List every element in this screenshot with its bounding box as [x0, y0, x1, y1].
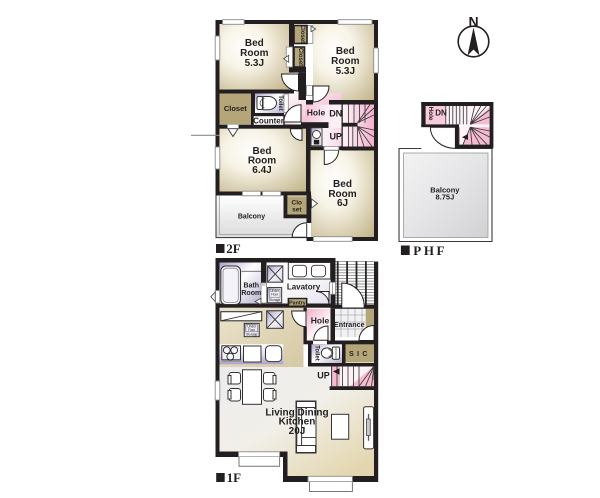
svg-text:Hole: Hole — [307, 108, 326, 118]
svg-text:N: N — [468, 14, 478, 30]
svg-text:20J: 20J — [289, 426, 306, 437]
svg-text:Closet: Closet — [297, 48, 303, 66]
svg-text:Bath: Bath — [244, 282, 260, 289]
svg-text:Storage: Storage — [246, 332, 257, 336]
svg-text:set: set — [292, 207, 302, 214]
svg-text:5.3J: 5.3J — [245, 58, 264, 69]
svg-text:Clo: Clo — [292, 200, 303, 207]
svg-text:Toilet: Toilet — [277, 95, 283, 111]
svg-text:SIC: SIC — [349, 349, 371, 358]
svg-text:Entrance: Entrance — [334, 320, 365, 329]
svg-text:6J: 6J — [337, 198, 348, 209]
svg-text:DN: DN — [329, 108, 342, 118]
svg-text:DN: DN — [435, 108, 447, 117]
svg-text:UP: UP — [329, 132, 342, 142]
svg-text:PHF: PHF — [413, 243, 447, 258]
svg-text:UP: UP — [317, 371, 330, 381]
svg-text:1F: 1F — [227, 470, 242, 485]
svg-text:6.4J: 6.4J — [252, 165, 271, 176]
svg-text:Balcony: Balcony — [238, 213, 265, 220]
svg-text:2F: 2F — [226, 241, 241, 256]
svg-text:Toilet: Toilet — [314, 345, 320, 361]
svg-text:8.75J: 8.75J — [436, 192, 455, 201]
svg-text:Storage: Storage — [269, 298, 280, 302]
svg-text:5.3J: 5.3J — [336, 66, 355, 77]
svg-text:Pantry: Pantry — [289, 301, 306, 307]
svg-text:Closet: Closet — [299, 25, 305, 43]
svg-text:Lavatory: Lavatory — [287, 283, 321, 292]
svg-text:Room: Room — [241, 290, 261, 297]
svg-text:Counter: Counter — [253, 117, 284, 126]
svg-text:Closet: Closet — [224, 104, 247, 113]
svg-text:Floor: Floor — [271, 293, 279, 297]
svg-text:Floor: Floor — [248, 328, 256, 332]
svg-text:Hole: Hole — [311, 316, 330, 326]
svg-text:Hole: Hole — [427, 106, 434, 120]
